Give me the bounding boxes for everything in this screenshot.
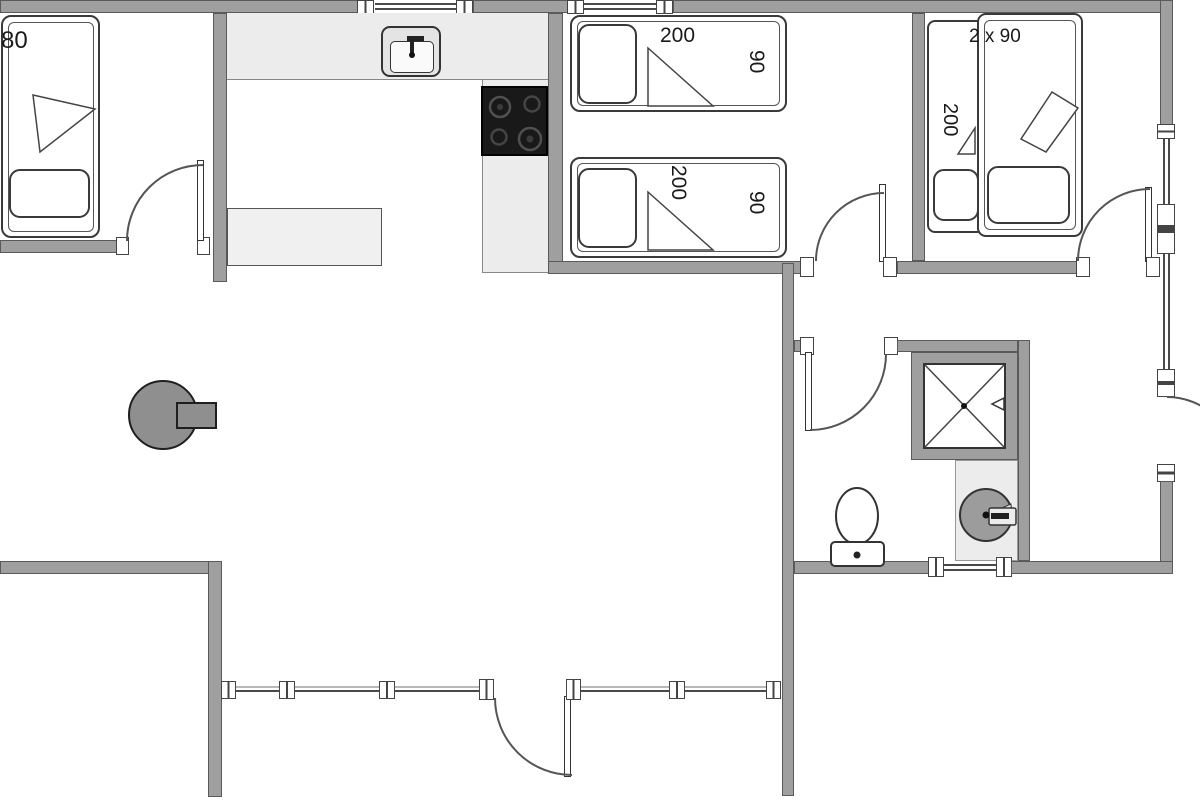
toilet-bowl <box>836 488 878 544</box>
washbasin-faucet <box>991 513 1009 519</box>
burner-icon <box>492 130 507 145</box>
door-swing-arc <box>495 698 572 775</box>
door-swing-arc <box>1167 397 1200 467</box>
door-swing-arc <box>1078 189 1150 261</box>
blanket-fold <box>958 128 975 154</box>
burner-icon <box>527 136 534 143</box>
blanket-fold <box>648 192 713 250</box>
shower-handle-icon <box>992 398 1004 410</box>
plan-overlay <box>0 0 1200 800</box>
door-swing-arc <box>127 165 203 241</box>
burner-icon <box>525 97 540 112</box>
door-swing-arc <box>810 354 886 430</box>
shower-drain-icon <box>961 403 967 409</box>
washbasin-drain-icon <box>983 512 990 519</box>
burner-icon <box>497 104 503 110</box>
blanket-fold <box>33 95 95 152</box>
blanket-fold <box>1021 92 1078 152</box>
toilet-button-icon <box>854 552 861 559</box>
blanket-fold <box>648 48 713 106</box>
door-swing-arc <box>816 193 884 261</box>
floor-plan: 80 200 90 200 90 2 x 90 200 <box>0 0 1200 800</box>
